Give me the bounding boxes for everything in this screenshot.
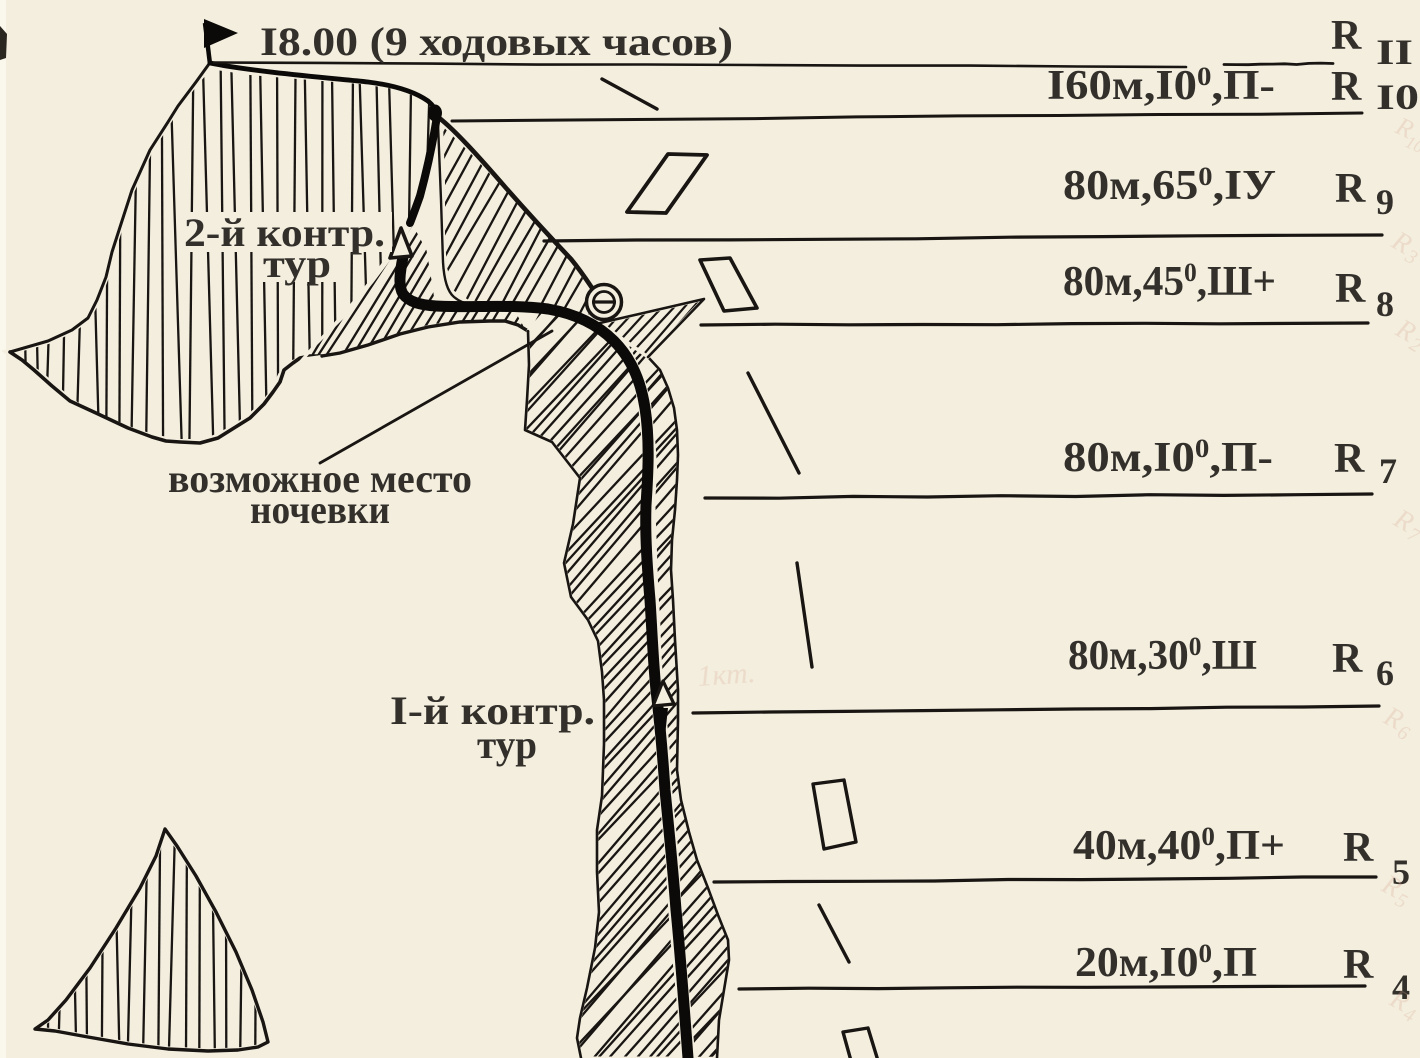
svg-text:R: R [1343,825,1374,871]
svg-text:R: R [1335,166,1366,212]
svg-text:6: 6 [1376,653,1394,693]
svg-text:9: 9 [1376,182,1394,222]
svg-text:I0: I0 [1376,77,1419,117]
svg-text:I8.00 (9 ходовых часов): I8.00 (9 ходовых часов) [260,19,733,64]
svg-text:8: 8 [1376,284,1394,324]
svg-text:R: R [1332,636,1363,682]
svg-text:R: R [1343,942,1374,988]
svg-text:80м,I00,П-: 80м,I00,П- [1063,434,1273,481]
svg-text:80м,650,IУ: 80м,650,IУ [1063,162,1276,209]
svg-text:R: R [1334,436,1365,482]
svg-text:R: R [1335,266,1366,312]
svg-text:R: R [1331,13,1362,59]
svg-text:80м,450,Ш+: 80м,450,Ш+ [1063,258,1276,305]
svg-text:I60м,I00,П-: I60м,I00,П- [1047,62,1275,109]
svg-text:II: II [1376,32,1413,72]
svg-text:R: R [1331,64,1362,110]
svg-text:тур: тур [477,722,537,767]
svg-text:1кт.: 1кт. [696,656,756,693]
svg-text:7: 7 [1379,451,1397,491]
svg-text:ночевки: ночевки [250,487,390,532]
svg-text:20м,I00,П: 20м,I00,П [1075,939,1257,986]
svg-text:тур: тур [263,241,331,286]
svg-text:40м,400,П+: 40м,400,П+ [1073,822,1285,869]
svg-text:80м,300,Ш: 80м,300,Ш [1068,632,1257,679]
